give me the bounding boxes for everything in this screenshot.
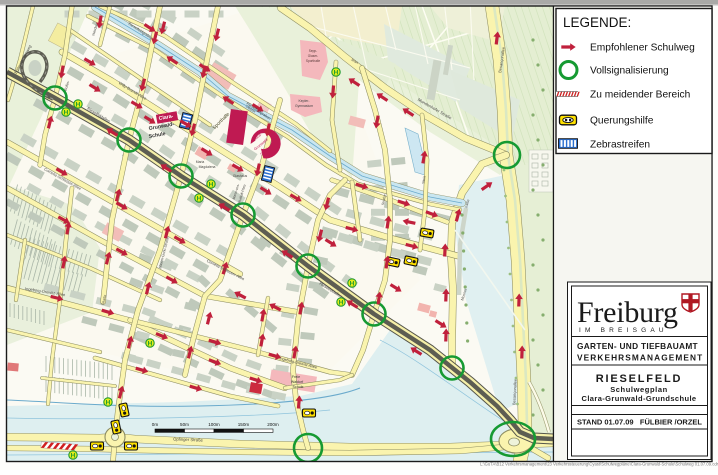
svg-text:RIESELFELD: RIESELFELD <box>596 373 682 385</box>
svg-text:H: H <box>148 340 153 347</box>
svg-text:GARTEN- UND TIEFBAUAMT: GARTEN- UND TIEFBAUAMT <box>577 341 698 351</box>
svg-text:Querungshilfe: Querungshilfe <box>590 116 654 127</box>
svg-text:Sepp-: Sepp- <box>309 49 318 53</box>
svg-text:Zu meidender Bereich: Zu meidender Bereich <box>590 90 690 101</box>
svg-text:Waldorf: Waldorf <box>291 380 303 384</box>
svg-text:L:\GuTA\B12 Verkehrsmanagement: L:\GuTA\B12 Verkehrsmanagement\23 Verkeh… <box>480 462 718 467</box>
svg-text:H: H <box>64 109 69 116</box>
svg-text:Zebrastreifen: Zebrastreifen <box>590 140 650 151</box>
svg-text:Empfohlener Schulweg: Empfohlener Schulweg <box>590 43 695 54</box>
svg-text:H: H <box>71 452 76 459</box>
svg-text:H: H <box>209 181 214 188</box>
svg-text:IM BREISGAU: IM BREISGAU <box>579 327 668 334</box>
svg-text:H: H <box>197 195 202 202</box>
svg-text:H: H <box>339 299 344 306</box>
svg-text:H: H <box>76 101 81 108</box>
svg-text:VERKEHRSMANAGEMENT: VERKEHRSMANAGEMENT <box>577 353 703 363</box>
svg-text:FÜLBIER /ORZEL: FÜLBIER /ORZEL <box>640 418 702 427</box>
svg-text:150m: 150m <box>238 422 250 427</box>
svg-text:H: H <box>106 399 111 406</box>
svg-text:50m: 50m <box>180 422 189 427</box>
svg-text:H: H <box>350 280 355 287</box>
svg-text:Freie: Freie <box>292 375 300 379</box>
svg-text:Sporthalle: Sporthalle <box>306 59 321 63</box>
svg-text:Schulwegplan: Schulwegplan <box>610 385 668 394</box>
svg-text:Clara-Grunwald-Grundschule: Clara-Grunwald-Grundschule <box>582 394 697 403</box>
svg-text:Glaser-: Glaser- <box>308 54 318 58</box>
svg-text:H: H <box>334 69 339 76</box>
svg-text:Vollsignalisierung: Vollsignalisierung <box>590 66 669 77</box>
svg-text:Gymnasium: Gymnasium <box>295 104 313 108</box>
svg-text:Maria: Maria <box>196 160 205 164</box>
svg-text:Schule: Schule <box>293 385 304 389</box>
svg-text:Freiburg: Freiburg <box>577 296 678 329</box>
svg-text:Glashaus: Glashaus <box>233 174 248 178</box>
svg-text:Kepler-: Kepler- <box>299 99 310 103</box>
svg-text:Magdalena: Magdalena <box>199 165 216 169</box>
svg-text:0m: 0m <box>152 422 159 427</box>
svg-text:200m: 200m <box>267 422 279 427</box>
svg-text:LEGENDE:: LEGENDE: <box>563 15 631 30</box>
svg-text:100m: 100m <box>208 422 220 427</box>
svg-text:STAND 01.07.09: STAND 01.07.09 <box>577 418 634 427</box>
svg-text:Opfinger Straße: Opfinger Straße <box>173 436 204 442</box>
